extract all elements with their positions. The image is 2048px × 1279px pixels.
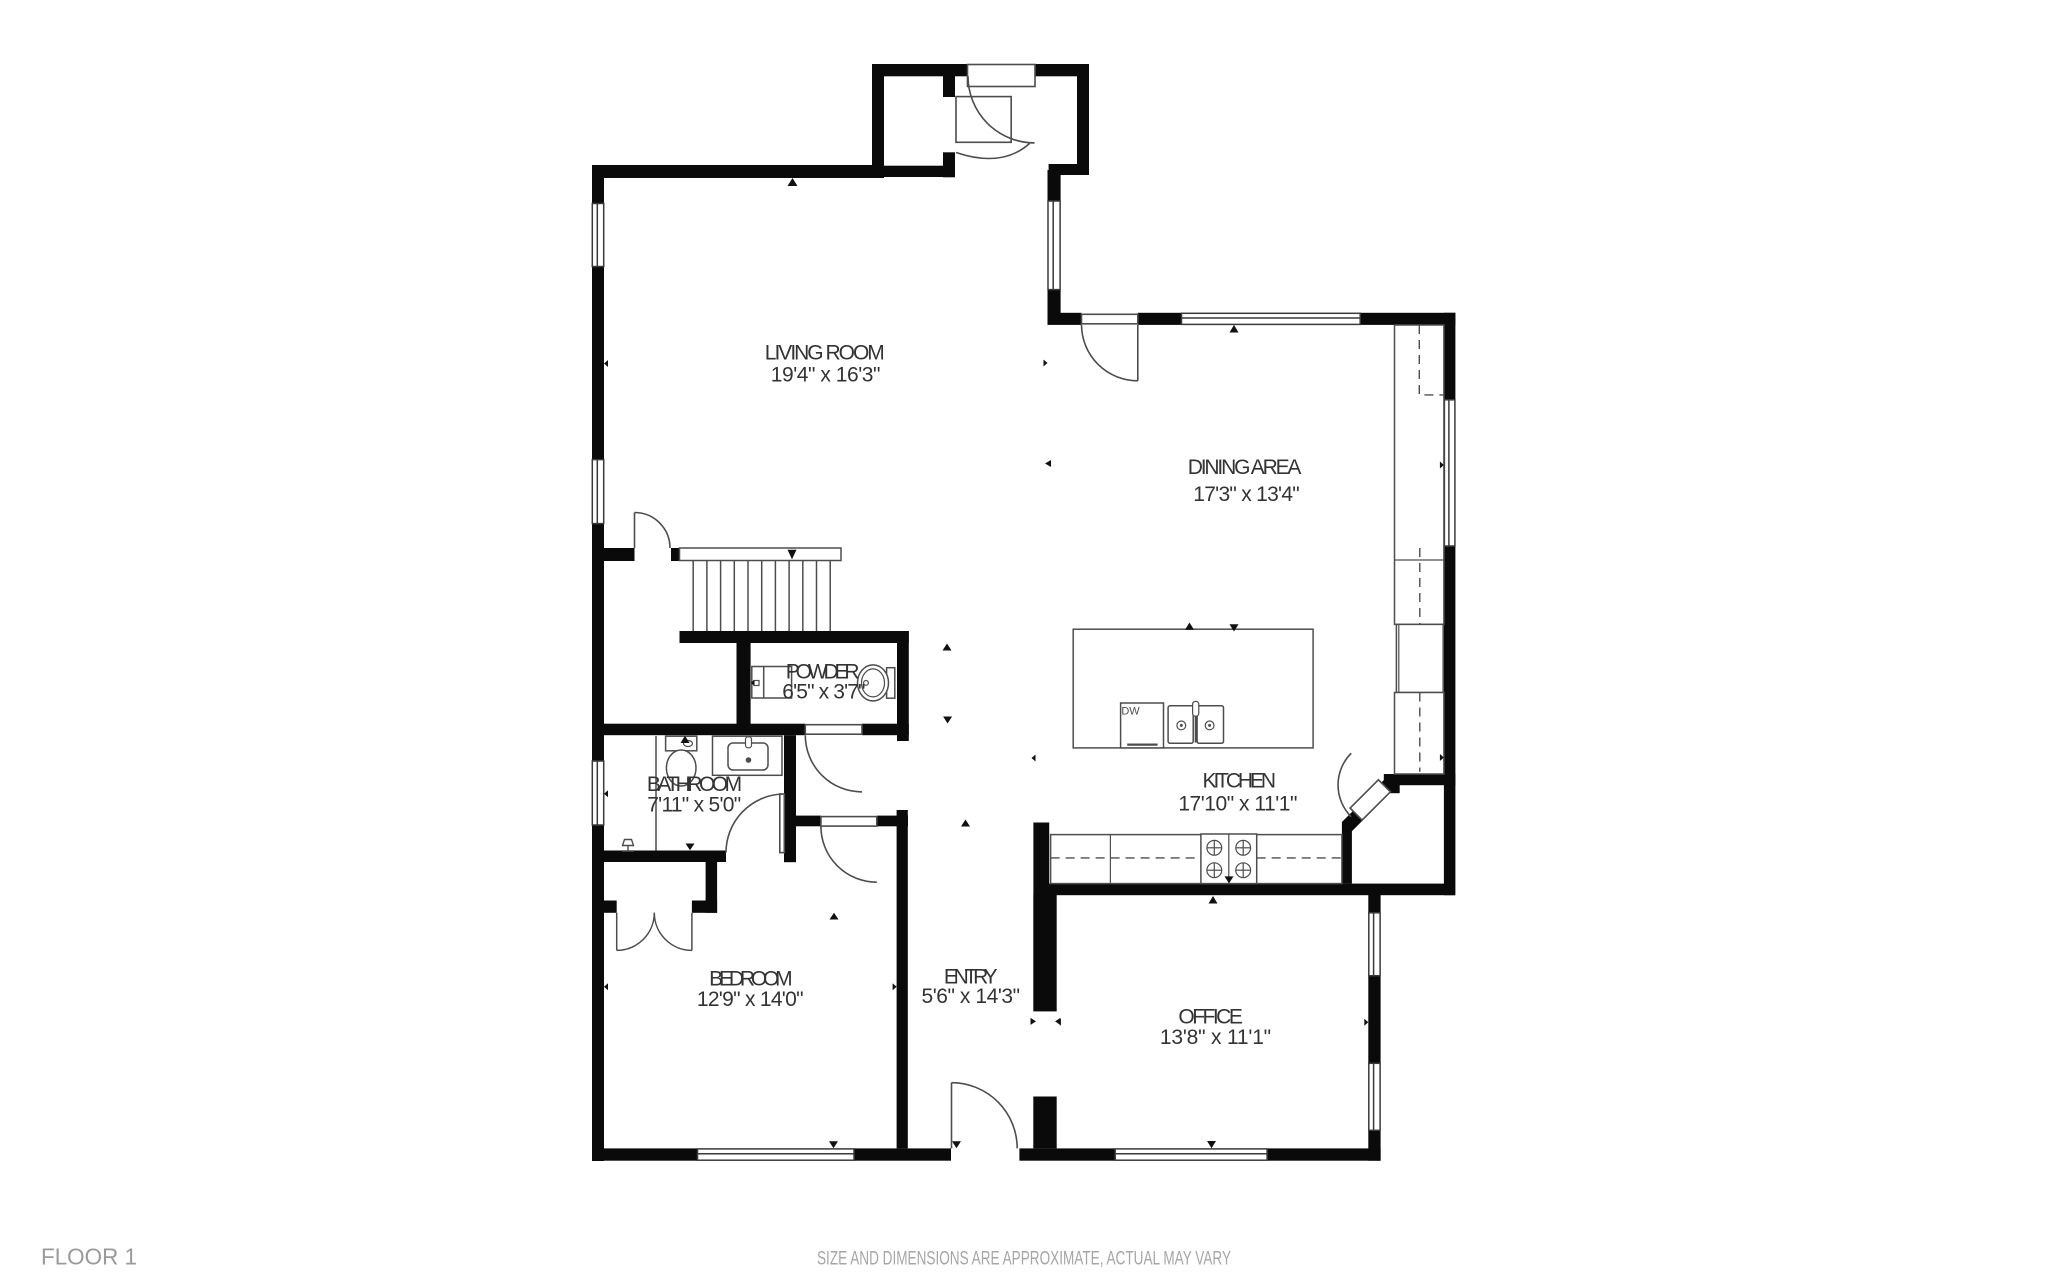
svg-text:LIVING ROOM: LIVING ROOM (765, 342, 885, 365)
svg-text:6'5" x 3'7": 6'5" x 3'7" (782, 681, 865, 704)
svg-text:17'3" x 13'4": 17'3" x 13'4" (1193, 483, 1300, 506)
svg-text:19'4" x 16'3": 19'4" x 16'3" (771, 363, 881, 386)
svg-text:12'9" x 14'0": 12'9" x 14'0" (697, 988, 804, 1011)
svg-text:SIZE AND DIMENSIONS ARE APPROX: SIZE AND DIMENSIONS ARE APPROXIMATE, ACT… (817, 1249, 1231, 1270)
svg-text:13'8" x 11'1": 13'8" x 11'1" (1160, 1026, 1271, 1049)
svg-text:FLOOR 1: FLOOR 1 (41, 1244, 137, 1270)
svg-text:5'6" x 14'3": 5'6" x 14'3" (922, 985, 1021, 1008)
svg-text:KITCHEN: KITCHEN (1203, 769, 1277, 792)
svg-text:17'10" x 11'1": 17'10" x 11'1" (1178, 793, 1297, 816)
svg-text:DW: DW (1121, 706, 1140, 718)
svg-text:DINING AREA: DINING AREA (1188, 456, 1302, 479)
svg-text:7'11" x 5'0": 7'11" x 5'0" (647, 794, 741, 817)
